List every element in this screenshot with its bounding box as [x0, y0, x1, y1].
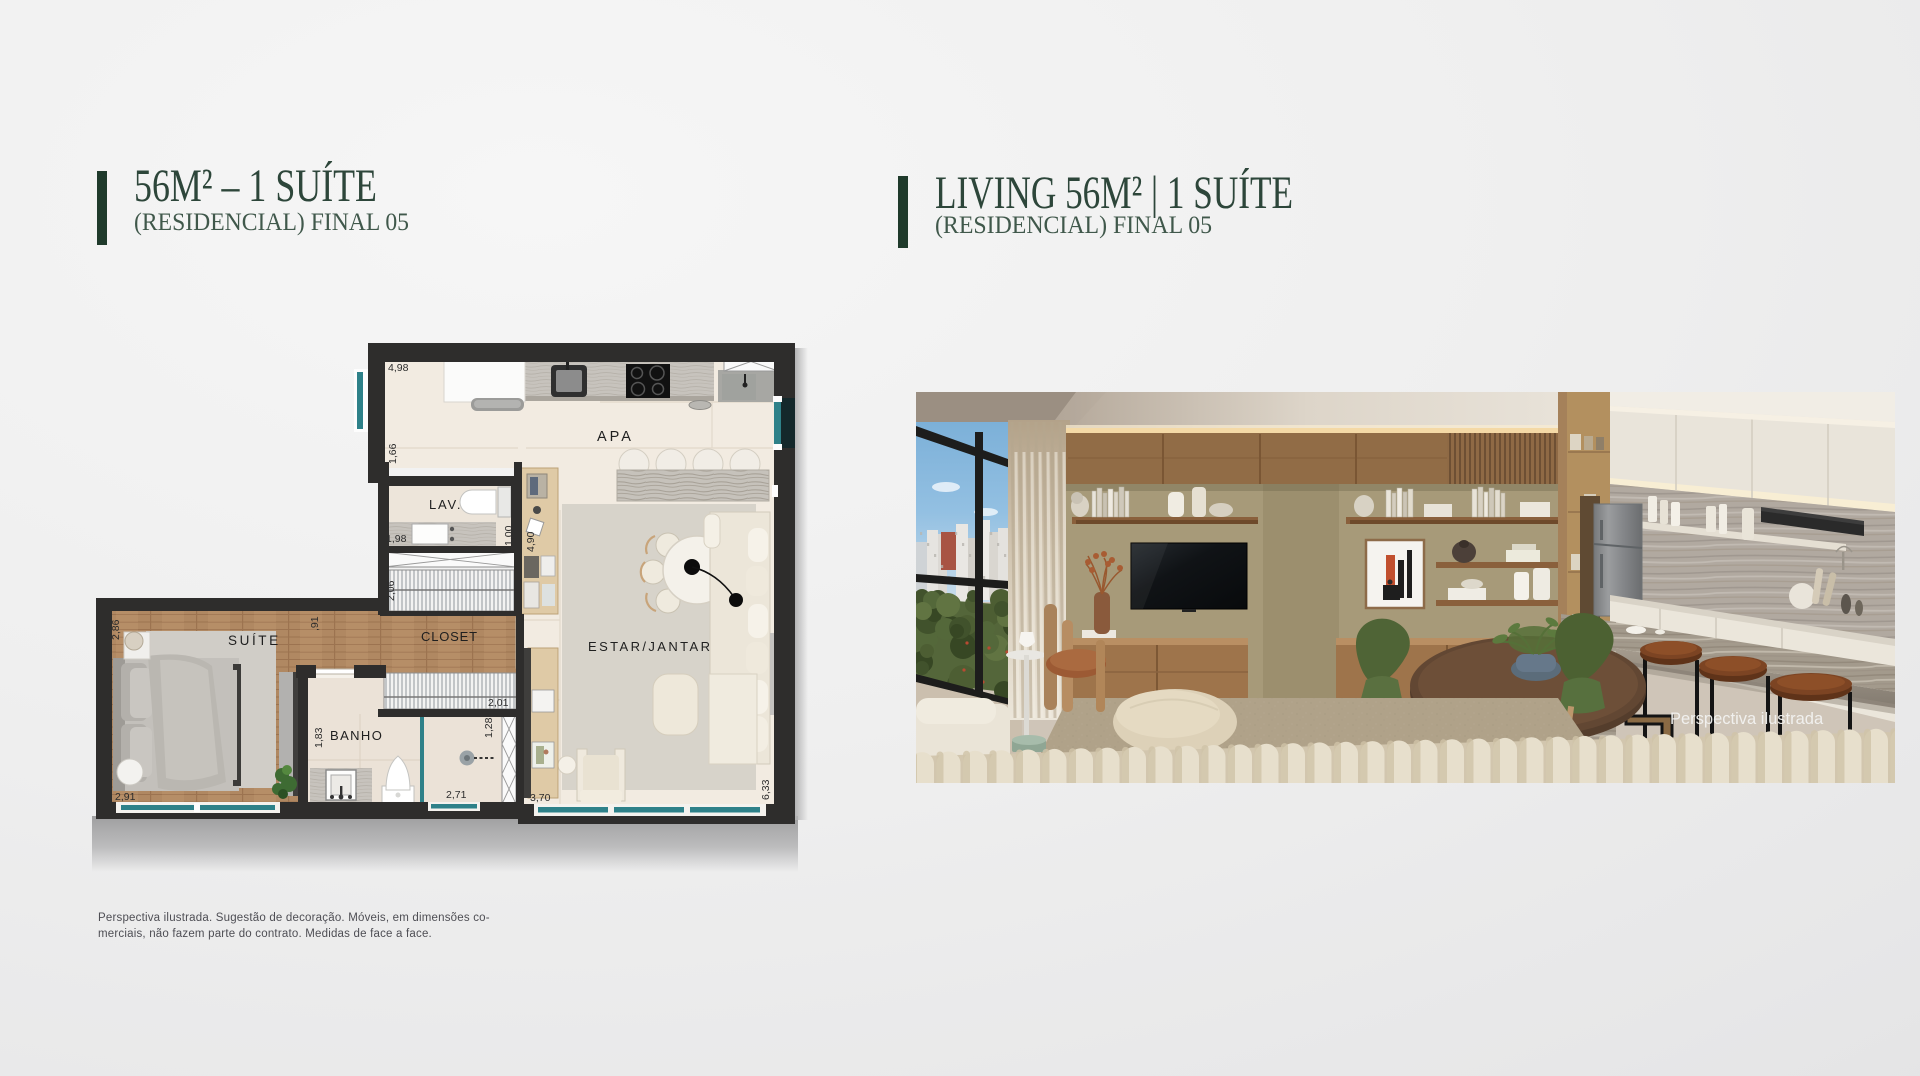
svg-text:ESTAR/JANTAR: ESTAR/JANTAR — [588, 639, 712, 654]
svg-text:2,71: 2,71 — [446, 789, 467, 801]
svg-text:,91: ,91 — [309, 616, 321, 631]
svg-text:1,28: 1,28 — [483, 717, 495, 738]
svg-text:4,98: 4,98 — [388, 362, 409, 374]
svg-text:1,98: 1,98 — [386, 533, 407, 545]
svg-text:4,90: 4,90 — [525, 531, 537, 552]
svg-text:6,33: 6,33 — [760, 779, 772, 800]
svg-text:BANHO: BANHO — [330, 728, 383, 743]
svg-text:2,86: 2,86 — [110, 619, 122, 640]
svg-text:2,06: 2,06 — [385, 580, 397, 601]
svg-text:Perspectiva ilustrada: Perspectiva ilustrada — [1670, 710, 1824, 728]
svg-text:APA: APA — [597, 429, 634, 445]
svg-text:1,66: 1,66 — [387, 443, 399, 464]
svg-text:LAV.: LAV. — [429, 497, 462, 512]
svg-text:3,70: 3,70 — [530, 792, 551, 804]
svg-text:2,01: 2,01 — [488, 697, 509, 709]
svg-text:SUÍTE: SUÍTE — [228, 633, 281, 648]
svg-text:2,91: 2,91 — [115, 791, 136, 803]
svg-text:CLOSET: CLOSET — [421, 629, 478, 644]
svg-text:1,00: 1,00 — [503, 525, 515, 546]
svg-text:1,83: 1,83 — [313, 727, 325, 748]
